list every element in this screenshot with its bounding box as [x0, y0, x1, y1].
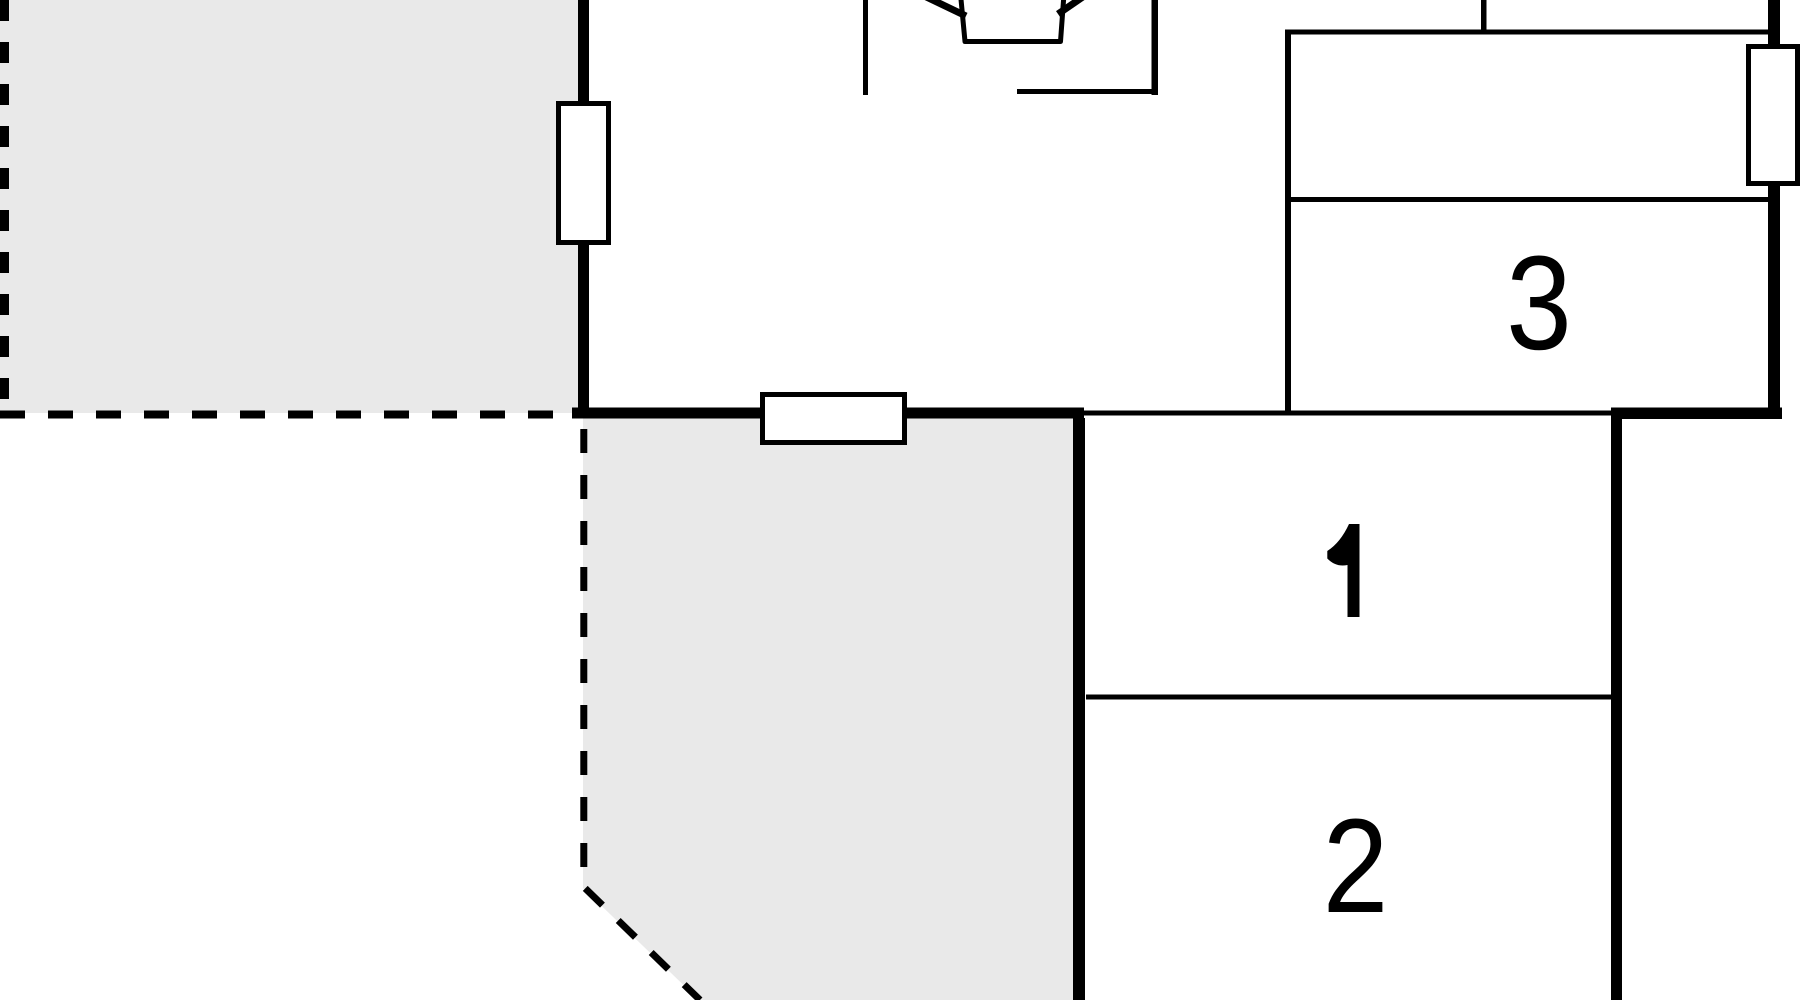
svg-text:2: 2: [1323, 791, 1389, 941]
svg-text:3: 3: [1506, 228, 1572, 378]
